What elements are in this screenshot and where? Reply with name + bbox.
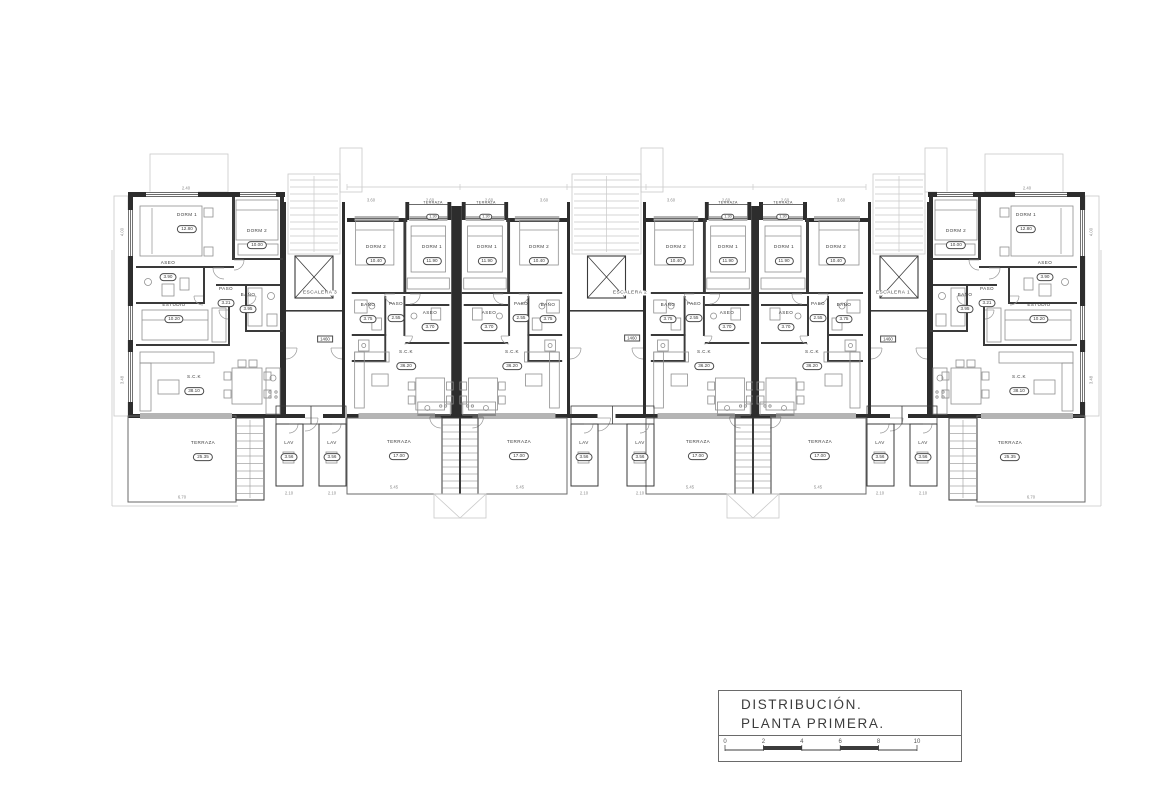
scale-tick-label: 4 — [800, 739, 804, 745]
scale-bar-row: 0246810 — [719, 736, 961, 759]
title-line-2: PLANTA PRIMERA. — [741, 715, 961, 734]
title-line-1: DISTRIBUCIÓN. — [741, 696, 961, 715]
floor-plan-drawing — [0, 0, 1170, 785]
scale-tick-label: 0 — [723, 739, 727, 745]
title-block: DISTRIBUCIÓN. PLANTA PRIMERA. 0246810 — [718, 690, 962, 762]
scale-tick-label: 8 — [877, 739, 881, 745]
floor-plan-page: DORM 112.80DORM 210.00ASEO3.90PASO3.21BA… — [0, 0, 1170, 785]
scale-tick-label: 2 — [762, 739, 766, 745]
title-text: DISTRIBUCIÓN. PLANTA PRIMERA. — [719, 691, 961, 736]
scale-tick-label: 10 — [914, 739, 921, 745]
scale-tick-label: 6 — [839, 739, 843, 745]
scale-bar: 0246810 — [719, 736, 949, 759]
